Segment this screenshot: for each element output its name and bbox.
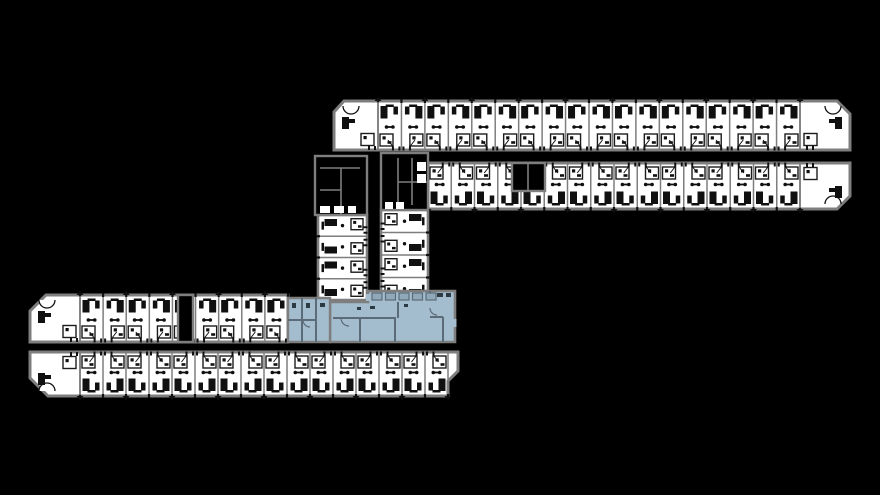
connector-stack-west [316,214,368,301]
stair-core-west [315,156,367,215]
floor-plan-canvas: architectural-floor-plan [0,0,880,495]
stair-core-east [381,153,428,210]
north-wing-lower-rooms [425,163,851,214]
south-wing-lower-rooms [30,352,458,401]
floor-plan-drawing [0,0,880,495]
north-wing-upper-rooms [334,97,850,151]
connector-stack-east [381,209,431,301]
highlighted-amenity-unit [288,291,457,342]
entry-gap [178,295,193,342]
service-core-mid [512,163,545,191]
south-wing-upper-rooms [30,291,289,343]
